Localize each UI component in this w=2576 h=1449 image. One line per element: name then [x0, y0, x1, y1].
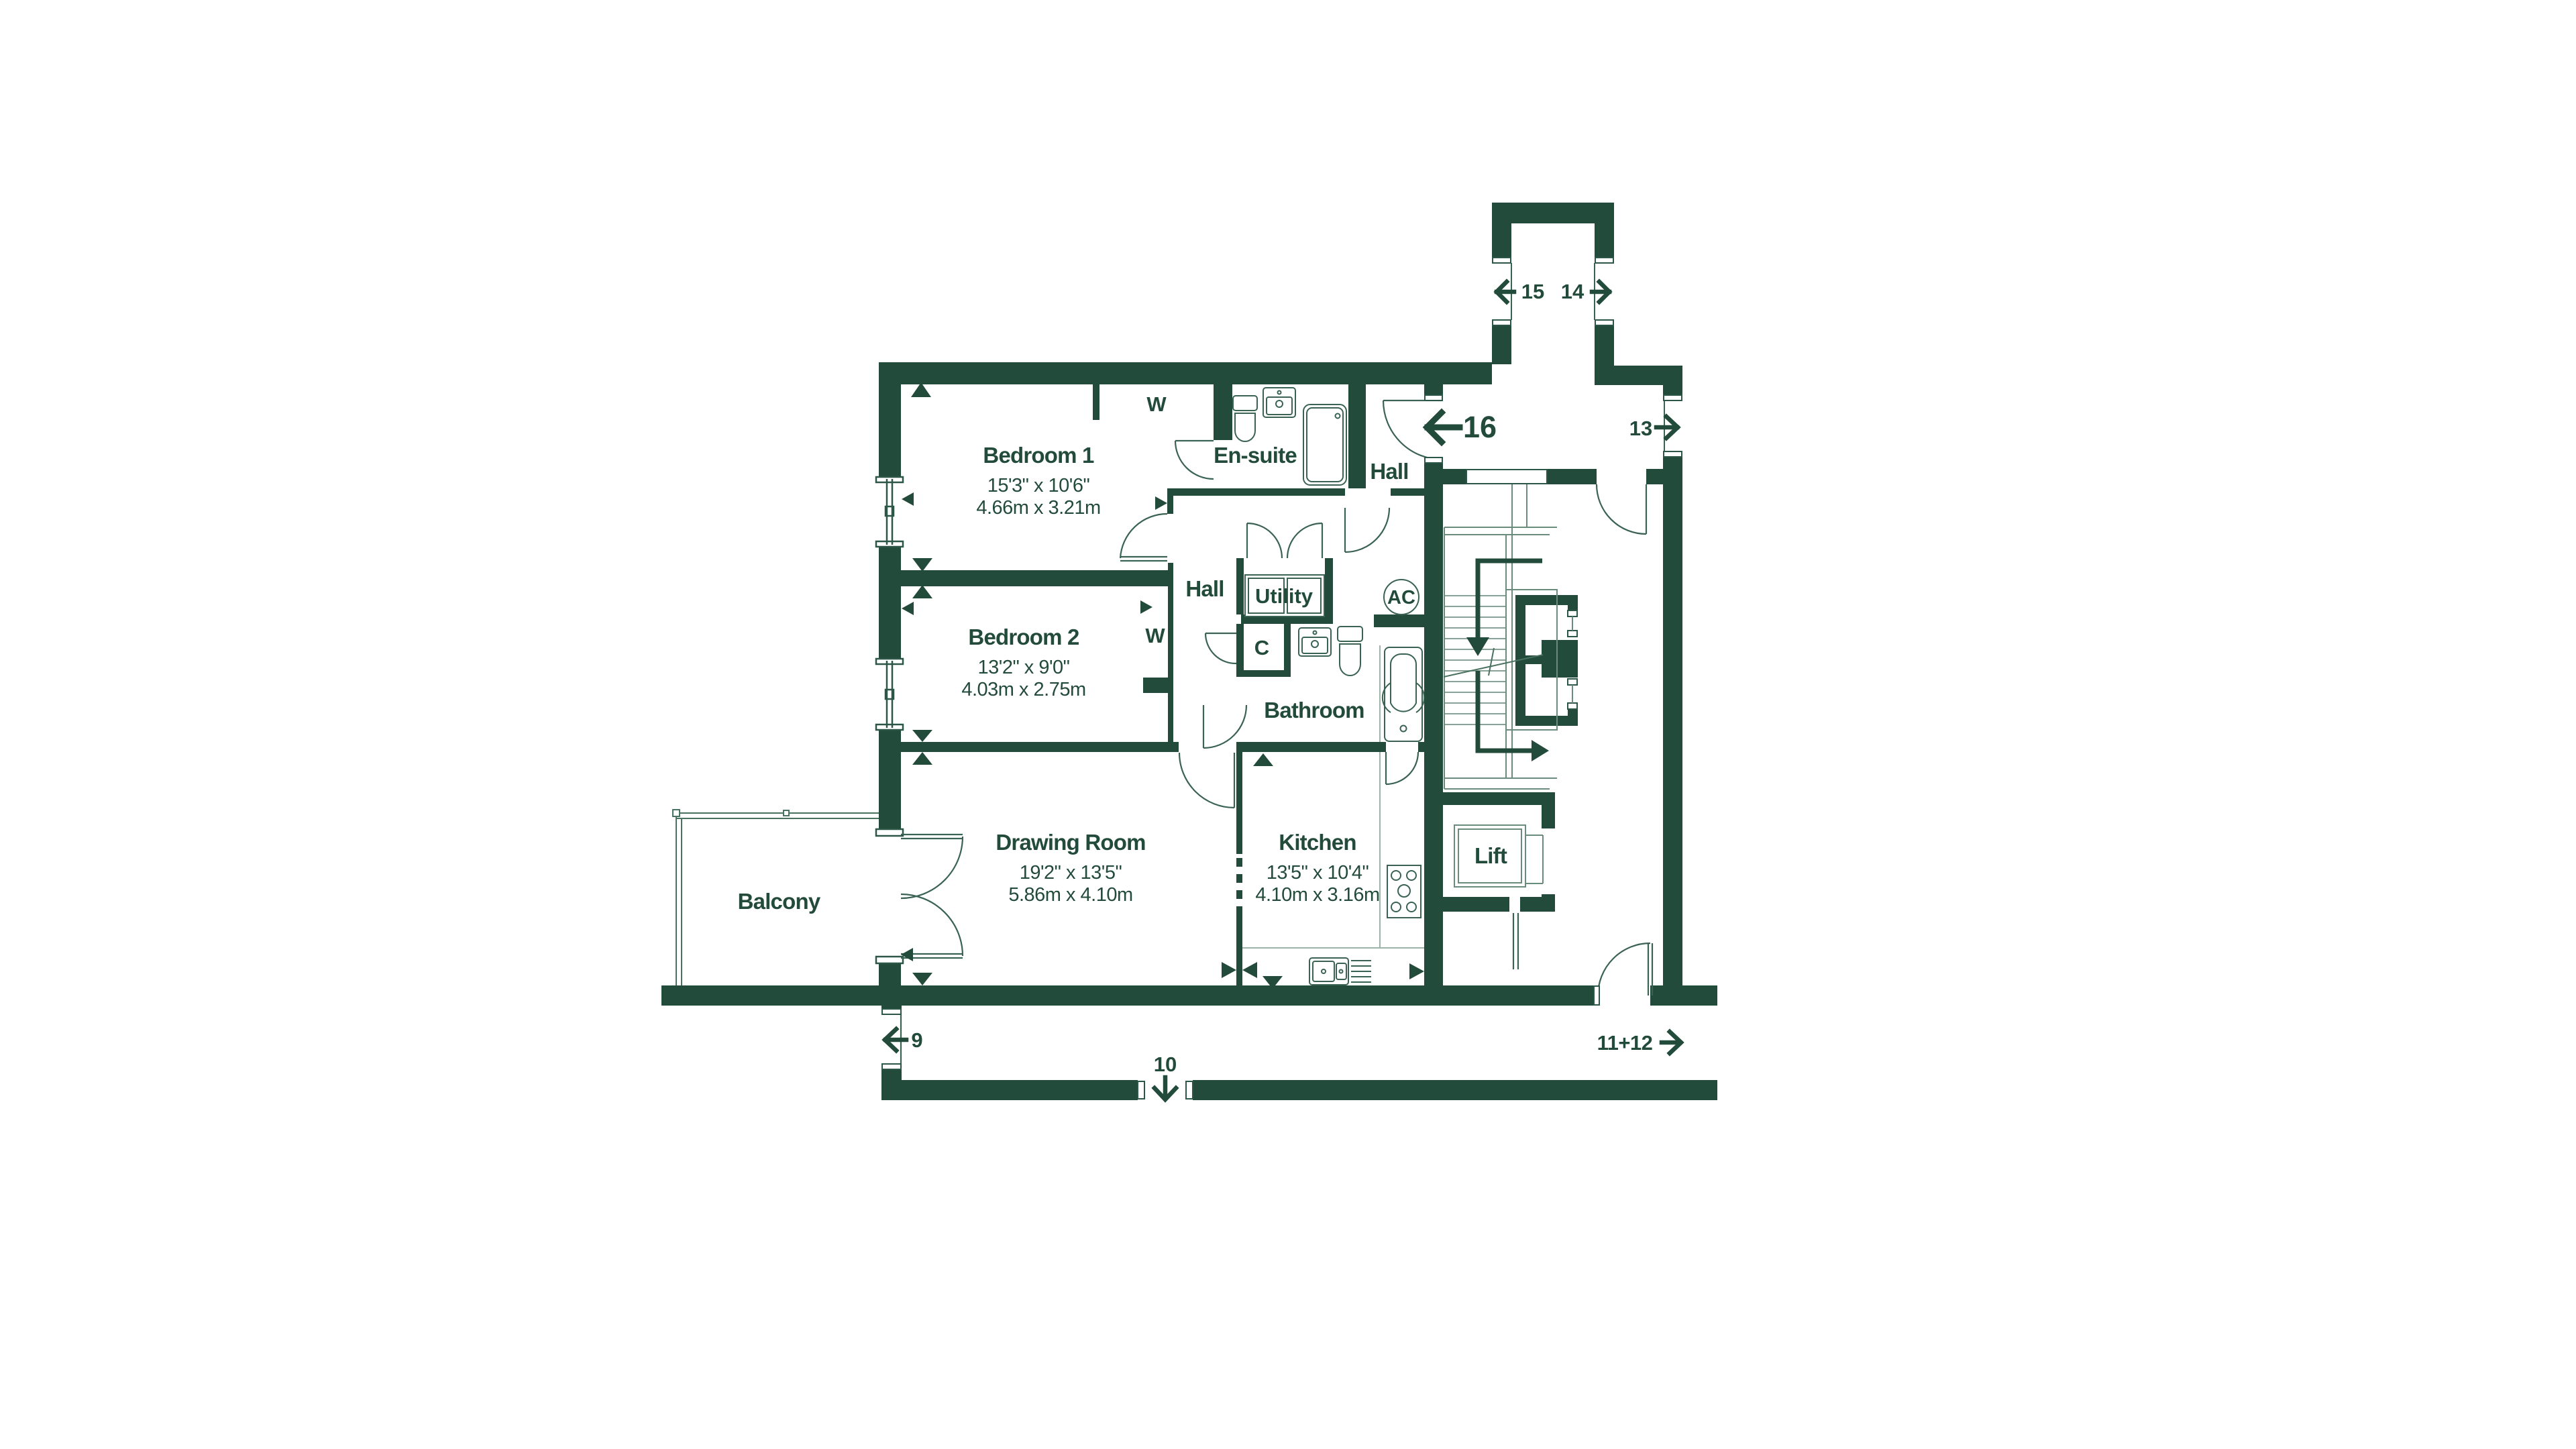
svg-text:15: 15 [1521, 280, 1544, 303]
svg-text:Balcony: Balcony [738, 889, 821, 914]
svg-text:16: 16 [1463, 410, 1497, 444]
svg-text:Bedroom 2: Bedroom 2 [968, 625, 1079, 649]
svg-text:13'2" x 9'0": 13'2" x 9'0" [978, 657, 1070, 678]
svg-text:13'5" x 10'4": 13'5" x 10'4" [1267, 862, 1369, 883]
svg-text:19'2" x 13'5": 19'2" x 13'5" [1020, 862, 1122, 883]
svg-text:En-suite: En-suite [1214, 443, 1297, 468]
svg-text:4.10m x 3.16m: 4.10m x 3.16m [1255, 884, 1379, 906]
svg-text:5.86m x 4.10m: 5.86m x 4.10m [1008, 884, 1132, 906]
svg-text:Bathroom: Bathroom [1264, 698, 1364, 722]
svg-text:10: 10 [1154, 1053, 1177, 1076]
svg-text:AC: AC [1387, 587, 1415, 608]
svg-text:4.03m x 2.75m: 4.03m x 2.75m [961, 679, 1085, 700]
svg-text:Utility: Utility [1255, 584, 1313, 608]
svg-text:4.66m x 3.21m: 4.66m x 3.21m [976, 497, 1100, 519]
svg-text:Lift: Lift [1474, 843, 1507, 868]
svg-text:C: C [1254, 636, 1269, 659]
svg-text:Drawing Room: Drawing Room [996, 830, 1145, 855]
svg-text:Hall: Hall [1370, 459, 1408, 484]
svg-text:W: W [1146, 392, 1167, 416]
svg-text:Kitchen: Kitchen [1279, 830, 1356, 855]
svg-text:11+12: 11+12 [1597, 1031, 1653, 1055]
svg-text:15'3" x 10'6": 15'3" x 10'6" [987, 475, 1090, 496]
svg-text:9: 9 [911, 1028, 922, 1052]
svg-text:W: W [1145, 624, 1165, 647]
svg-text:Bedroom 1: Bedroom 1 [983, 443, 1094, 468]
svg-text:Hall: Hall [1185, 576, 1224, 601]
svg-text:13: 13 [1629, 417, 1652, 440]
svg-text:14: 14 [1561, 280, 1585, 303]
